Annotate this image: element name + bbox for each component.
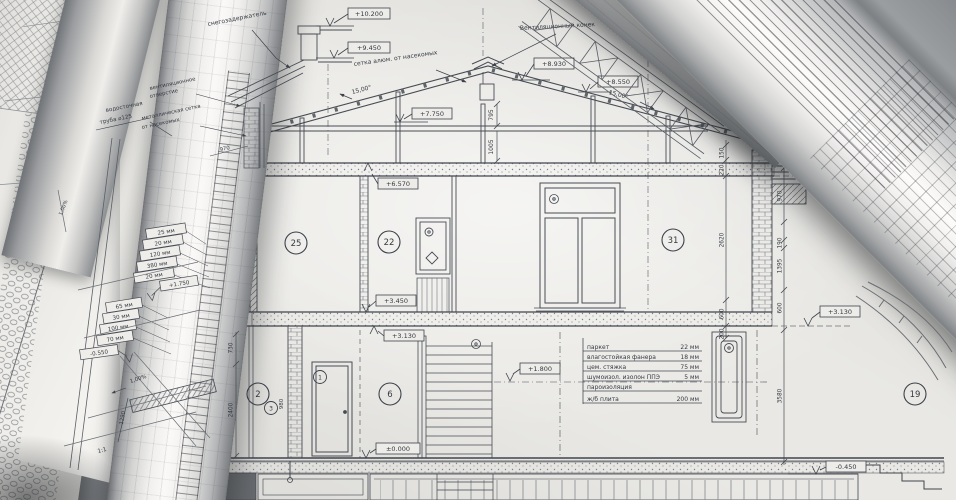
layer-stack-upper: 25 мм 20 мм 120 мм 380 мм 20 мм [133, 223, 210, 288]
elevation-m0550: -0.550 [79, 343, 133, 369]
dim-730: 730 [229, 342, 235, 353]
roll-shadow-bottom-left [0, 400, 180, 500]
elevation-m0550-value: -0.550 [90, 349, 109, 358]
slope-label-1: 1,00% [129, 374, 147, 385]
label-downpipe-1: водосточная [105, 101, 143, 114]
dim-2400: 2400 [229, 402, 235, 417]
blueprint-photo-scene: 795 1005 [0, 0, 956, 500]
layer-lower-3: 70 мм [106, 335, 124, 344]
layer-stack-lower: 65 мм 30 мм 100 мм 70 мм [96, 297, 171, 354]
slope-label-2: 1,00% [58, 199, 70, 216]
eave-detail-fragment: снегозадержатель вентиляционное отверсти… [141, 10, 305, 168]
dim-chain-left: 730 2400 [229, 331, 240, 459]
roll-end-layers [856, 282, 952, 380]
label-downpipe-2: труба ⌀125 [99, 114, 133, 126]
label-snow-guard: снегозадержатель [207, 10, 268, 28]
